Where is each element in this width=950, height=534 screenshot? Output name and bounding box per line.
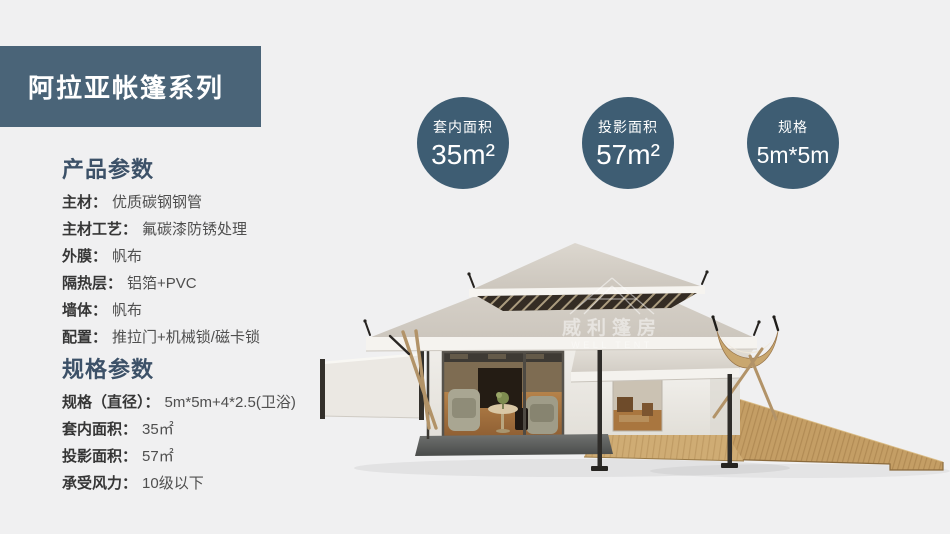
badge-label: 规格 bbox=[778, 117, 808, 137]
badge-label: 投影面积 bbox=[598, 117, 658, 137]
badge-value: 5m*5m bbox=[757, 140, 830, 170]
param-label: 套内面积： bbox=[62, 421, 137, 438]
param-value: 铝箔+PVC bbox=[127, 275, 197, 292]
product-sheet: 阿拉亚帐篷系列 套内面积 35m² 投影面积 57m² 规格 5m*5m 产品参… bbox=[0, 0, 950, 534]
param-label: 规格（直径）： bbox=[62, 394, 160, 411]
param-value: 推拉门+机械锁/磁卡锁 bbox=[112, 329, 260, 346]
param-row-configuration: 配置：推拉门+机械锁/磁卡锁 bbox=[62, 330, 362, 346]
watermark-cn: 威利篷房 bbox=[562, 316, 662, 339]
param-row-size: 规格（直径）：5m*5m+4*2.5(卫浴) bbox=[62, 395, 362, 411]
side-fence bbox=[320, 350, 424, 420]
badge-interior-area: 套内面积 35m² bbox=[417, 97, 509, 189]
param-label: 隔热层： bbox=[62, 275, 122, 292]
param-label: 墙体： bbox=[62, 302, 107, 319]
doorway bbox=[613, 378, 662, 431]
param-label: 外膜： bbox=[62, 248, 107, 265]
param-value: 35㎡ bbox=[142, 421, 174, 438]
badge-label: 套内面积 bbox=[433, 117, 493, 137]
badge-projection-area: 投影面积 57m² bbox=[582, 97, 674, 189]
badge-value: 35m² bbox=[431, 140, 495, 170]
param-label: 配置： bbox=[62, 329, 107, 346]
stone-base bbox=[415, 434, 613, 456]
param-row-interior-area: 套内面积：35㎡ bbox=[62, 422, 362, 438]
param-value: 帆布 bbox=[112, 302, 142, 319]
param-value: 帆布 bbox=[112, 248, 142, 265]
porch-wall bbox=[600, 377, 740, 435]
badge-value: 57m² bbox=[596, 140, 660, 170]
badge-size: 规格 5m*5m bbox=[747, 97, 839, 189]
param-value: 优质碳钢钢管 bbox=[112, 194, 202, 211]
param-label: 主材工艺： bbox=[62, 221, 137, 238]
param-row-insulation: 隔热层：铝箔+PVC bbox=[62, 276, 362, 292]
watermark-en: WELL TENT bbox=[571, 340, 653, 350]
param-label: 投影面积： bbox=[62, 448, 137, 465]
section-heading-product-params: 产品参数 bbox=[62, 158, 362, 182]
tent-illustration: 威利篷房 WELL TENT bbox=[320, 232, 950, 534]
param-row-material-process: 主材工艺：氟碳漆防锈处理 bbox=[62, 222, 362, 238]
param-value: 氟碳漆防锈处理 bbox=[142, 221, 247, 238]
param-value: 57㎡ bbox=[142, 448, 174, 465]
picture-window bbox=[443, 352, 563, 437]
param-row-wind-resistance: 承受风力：10级以下 bbox=[62, 476, 362, 492]
section-heading-spec-params: 规格参数 bbox=[62, 358, 362, 382]
param-row-projection-area: 投影面积：57㎡ bbox=[62, 449, 362, 465]
page-title: 阿拉亚帐篷系列 bbox=[0, 68, 224, 105]
title-banner: 阿拉亚帐篷系列 bbox=[0, 46, 261, 127]
parameters-panel: 产品参数 主材：优质碳钢钢管 主材工艺：氟碳漆防锈处理 外膜：帆布 隔热层：铝箔… bbox=[62, 158, 362, 503]
param-row-material: 主材：优质碳钢钢管 bbox=[62, 195, 362, 211]
param-value: 5m*5m+4*2.5(卫浴) bbox=[165, 394, 296, 411]
param-label: 承受风力： bbox=[62, 475, 137, 492]
top-canopy bbox=[469, 243, 705, 311]
param-value: 10级以下 bbox=[142, 475, 204, 492]
param-row-wall: 墙体：帆布 bbox=[62, 303, 362, 319]
param-label: 主材： bbox=[62, 194, 107, 211]
param-row-outer-membrane: 外膜：帆布 bbox=[62, 249, 362, 265]
